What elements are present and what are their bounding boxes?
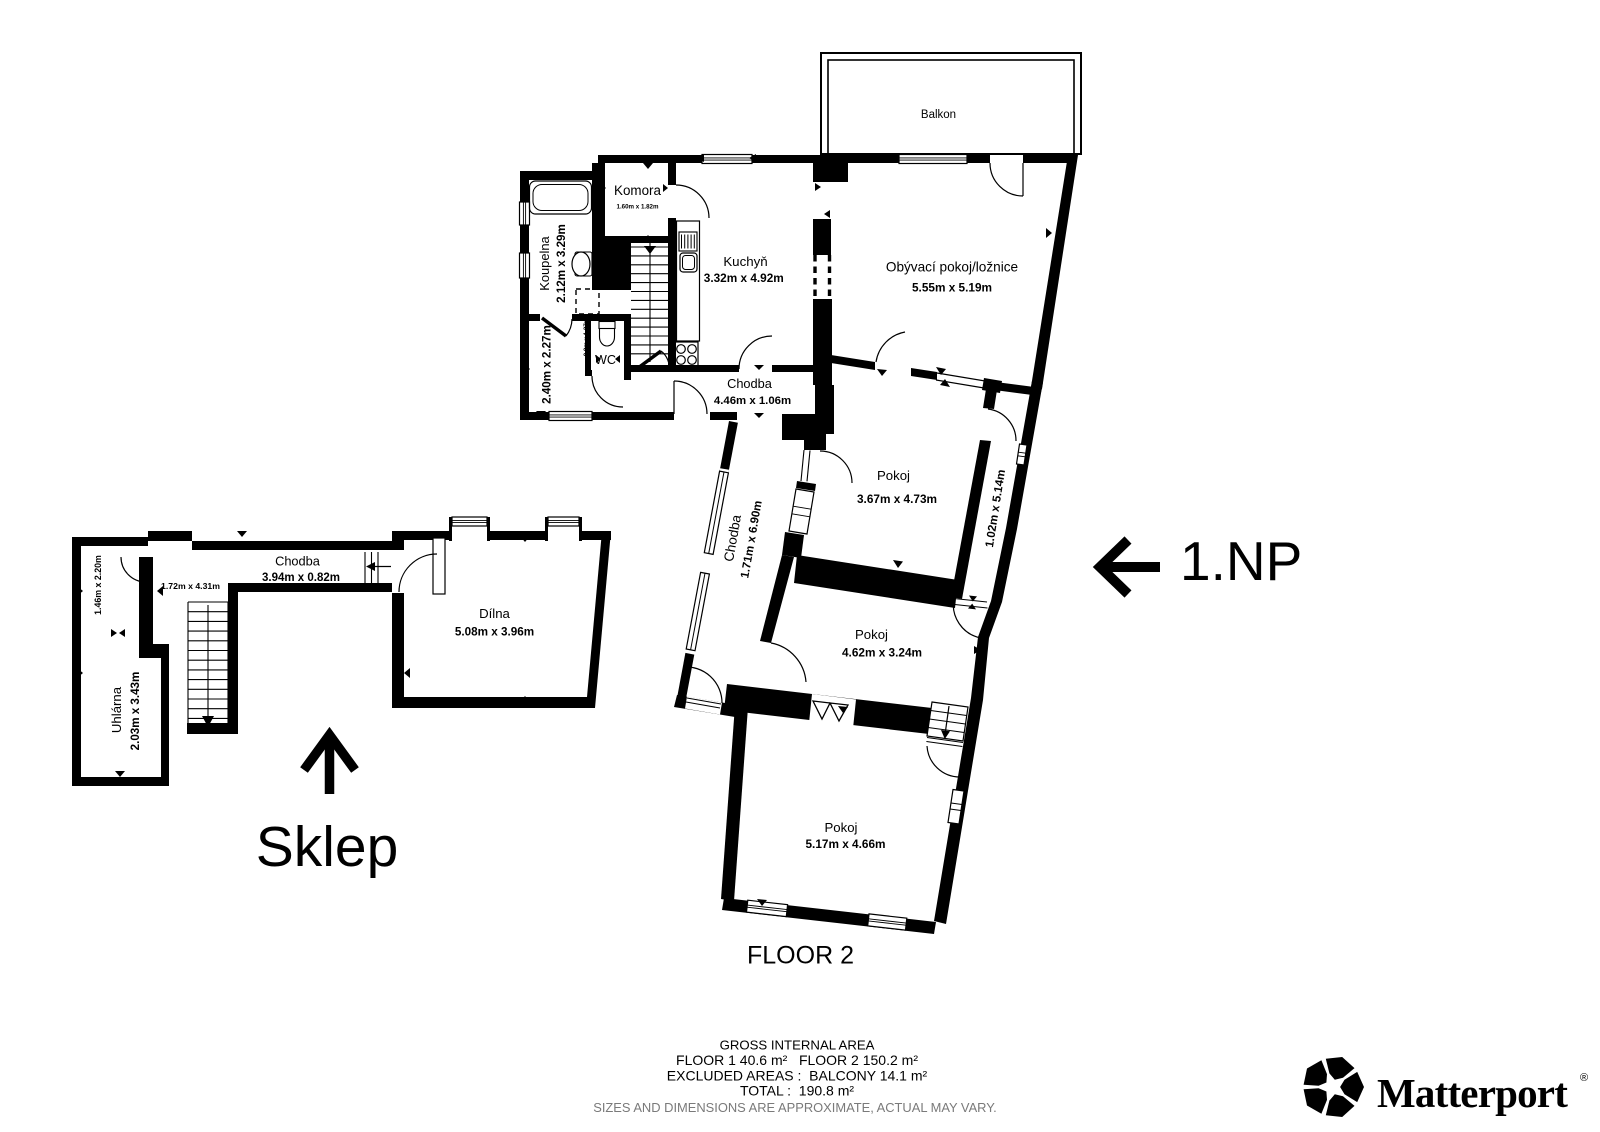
svg-text:Obývací pokoj/ložnice: Obývací pokoj/ložnice <box>886 260 1018 275</box>
svg-text:1.46m x 2.20m: 1.46m x 2.20m <box>93 555 103 615</box>
svg-text:1.NP: 1.NP <box>1180 530 1302 592</box>
svg-text:Matterport: Matterport <box>1377 1070 1568 1116</box>
svg-text:5.08m x 3.96m: 5.08m x 3.96m <box>455 626 534 639</box>
svg-text:4.62m x 3.24m: 4.62m x 3.24m <box>842 646 922 660</box>
svg-text:GROSS INTERNAL AREA: GROSS INTERNAL AREA <box>720 1038 875 1053</box>
svg-text:Uhlárna: Uhlárna <box>109 686 124 733</box>
svg-text:Pokoj: Pokoj <box>825 820 858 835</box>
svg-text:Kuchyň: Kuchyň <box>723 254 767 269</box>
svg-text:1.72m x 4.31m: 1.72m x 4.31m <box>161 581 220 591</box>
svg-text:Koupelna: Koupelna <box>537 235 552 290</box>
svg-text:Chodba: Chodba <box>275 554 321 569</box>
svg-text:FLOOR 2: FLOOR 2 <box>747 942 854 970</box>
svg-text:Komora: Komora <box>614 183 661 198</box>
svg-text:SIZES AND DIMENSIONS ARE APPRO: SIZES AND DIMENSIONS ARE APPROXIMATE, AC… <box>593 1100 997 1115</box>
svg-text:2.12m x 3.29m: 2.12m x 3.29m <box>555 224 568 303</box>
svg-text:3.67m x 4.73m: 3.67m x 4.73m <box>857 492 937 506</box>
svg-text:FLOOR 1 40.6 m² FLOOR 2 150.: FLOOR 1 40.6 m² FLOOR 2 150.2 m² <box>676 1052 918 1068</box>
svg-text:2.03m x 3.43m: 2.03m x 3.43m <box>129 672 142 751</box>
svg-text:Pokoj: Pokoj <box>855 627 888 642</box>
svg-text:2.40m x 2.27m: 2.40m x 2.27m <box>541 325 554 404</box>
svg-text:Sklep: Sklep <box>256 815 399 879</box>
svg-text:3.32m x 4.92m: 3.32m x 4.92m <box>704 271 784 285</box>
svg-text:3.94m x 0.82m: 3.94m x 0.82m <box>262 572 340 584</box>
svg-text:1.60m x 1.82m: 1.60m x 1.82m <box>617 204 659 211</box>
svg-text:5.55m x 5.19m: 5.55m x 5.19m <box>912 281 992 295</box>
svg-text:®: ® <box>1580 1072 1588 1084</box>
svg-text:Chodba: Chodba <box>727 376 773 391</box>
svg-text:Dílna: Dílna <box>479 606 510 621</box>
svg-text:4.46m x 1.06m: 4.46m x 1.06m <box>714 395 791 407</box>
svg-text:Balkon: Balkon <box>921 109 956 121</box>
svg-text:TOTAL : 190.8 m²: TOTAL : 190.8 m² <box>740 1083 854 1099</box>
svg-text:EXCLUDED AREAS : BALCONY 14.1: EXCLUDED AREAS : BALCONY 14.1 m² <box>667 1068 928 1084</box>
svg-text:5.17m x 4.66m: 5.17m x 4.66m <box>805 837 885 851</box>
svg-text:0.9m x 1.27m: 0.9m x 1.27m <box>583 317 590 356</box>
svg-text:Pokoj: Pokoj <box>877 468 910 483</box>
